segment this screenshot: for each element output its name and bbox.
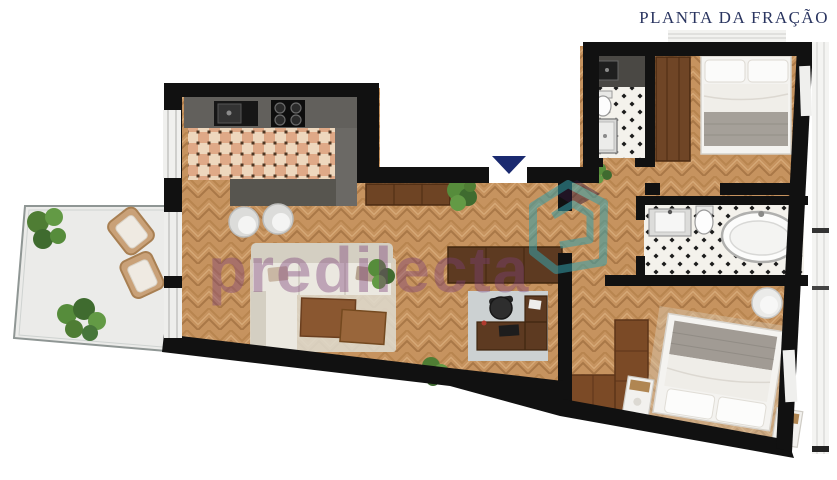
- kitchen-window: [163, 110, 181, 178]
- terrace-door-1: [164, 212, 182, 276]
- terrace-door-2: [164, 288, 182, 338]
- bedroom2-pouf: [752, 288, 782, 318]
- facade-window-band: [812, 42, 829, 454]
- kitchen-tile-floor: [188, 128, 335, 180]
- bathroom-vanity: [649, 209, 691, 236]
- bathroom-toilet: [695, 206, 713, 234]
- nightstand-left: [623, 376, 654, 416]
- bedroom1-wardrobe: [656, 57, 690, 161]
- entry-sideboard: [366, 184, 450, 205]
- entrance: [489, 156, 527, 183]
- page-title: PLANTA DA FRAÇÃO: [529, 8, 829, 28]
- watermark-text: predilecta: [208, 234, 530, 306]
- floor-plan-canvas: predilecta: [0, 0, 837, 480]
- kitchen-island: [230, 179, 336, 206]
- top-window: [668, 30, 786, 42]
- terrace: [14, 205, 178, 352]
- floor-plan-page: predilecta PLANTA DA FRAÇÃO: [0, 0, 837, 480]
- bathroom-main: [644, 204, 804, 276]
- office-monitor: [499, 324, 520, 336]
- bedroom1-window: [799, 66, 812, 116]
- bedroom1-bed: [701, 56, 791, 154]
- kitchen-counter-return: [335, 128, 357, 206]
- kitchen-cooktop: [271, 100, 305, 127]
- island-chair-2: [263, 204, 293, 234]
- island-chair-1: [229, 207, 259, 237]
- bathroom-wc: [592, 56, 646, 158]
- kitchen-sink: [214, 101, 258, 126]
